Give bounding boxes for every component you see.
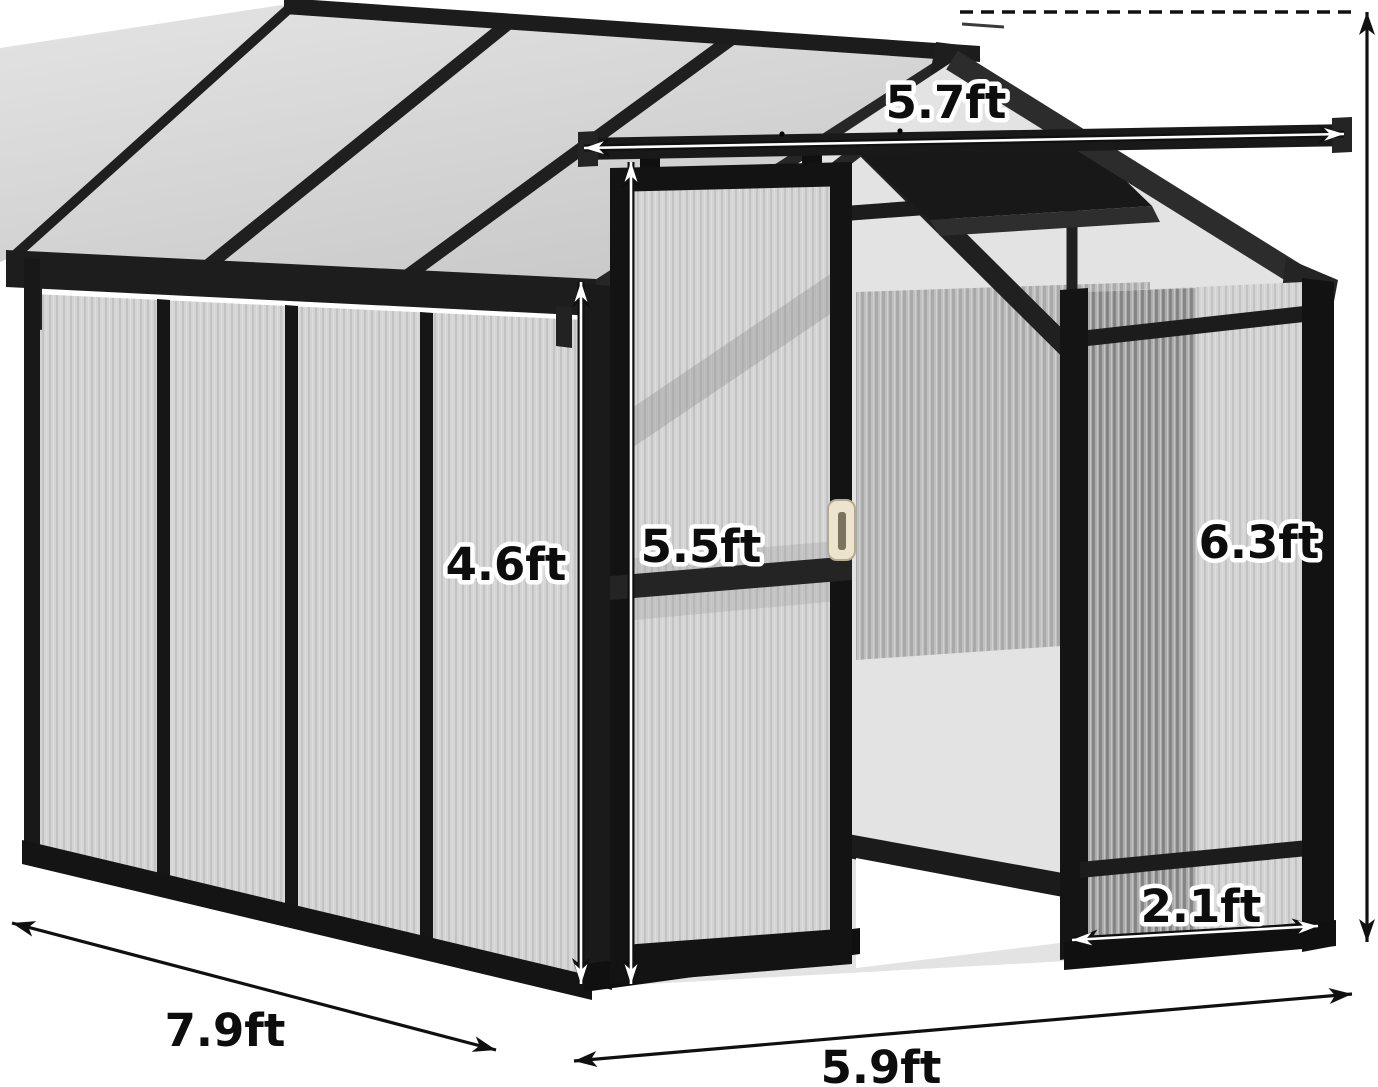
label-side-depth: 7.9ft — [165, 1004, 286, 1057]
right-front-panel — [1060, 278, 1336, 970]
rail-bolt — [897, 128, 902, 133]
label-peak-height: 6.3ft — [1199, 516, 1320, 569]
wall-mullion — [157, 299, 170, 880]
corner-post-front-left — [584, 284, 612, 990]
label-side-wall-height: 4.6ft — [446, 538, 567, 591]
greenhouse-dimension-diagram: 5.7ft 4.6ft 5.5ft 6.3ft 2.1ft 7.9ft 5.9f… — [0, 0, 1378, 1087]
dimension-front-width — [574, 994, 1352, 1061]
rail-bolt — [779, 131, 784, 136]
corner-post-front-right — [1302, 278, 1334, 952]
label-door-height: 5.5ft — [641, 520, 762, 573]
greenhouse-illustration — [0, 0, 1352, 1000]
wall-mullion — [420, 312, 433, 945]
ridge-detail — [962, 24, 1004, 27]
label-front-width: 5.9ft — [821, 1041, 942, 1087]
wall-mullion — [285, 305, 298, 912]
corner-post-back-left — [24, 258, 40, 856]
left-side-wall — [6, 250, 596, 1000]
door-handle-slot — [838, 512, 846, 550]
eave-bracket — [556, 306, 572, 348]
label-top-rail-length: 5.7ft — [886, 76, 1007, 129]
label-front-panel-width: 2.1ft — [1141, 880, 1262, 933]
doorway-right-jamb — [1060, 288, 1088, 960]
diagram-canvas: 5.7ft 4.6ft 5.5ft 6.3ft 2.1ft 7.9ft 5.9f… — [0, 0, 1378, 1087]
